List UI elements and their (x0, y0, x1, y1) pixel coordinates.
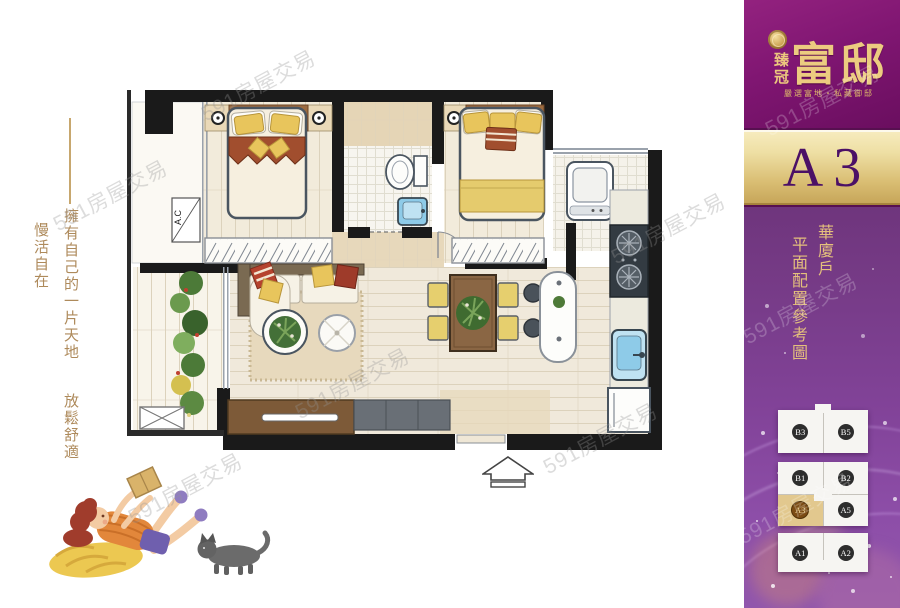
floor-plan: A.C (123, 85, 668, 465)
stack-cell-b3[interactable]: B3 (778, 410, 823, 453)
plan-title-part-2: 平面配置參考圖 (784, 236, 810, 362)
page: 擁有自己的一片天地 放鬆舒適 慢活自在 (0, 0, 900, 608)
ac-label: A.C (173, 209, 183, 225)
stack-block-top: B3 B5 (778, 410, 868, 453)
brand-logo-block: 臻冠 富邸 嚴選富地・私藏御邸 (744, 0, 900, 128)
unit-code-band: A3 (744, 128, 900, 207)
quote-part-1: 擁有自己的一片天地 (55, 208, 85, 361)
bedroom2-furniture (444, 105, 544, 263)
sidebar: 臻冠 富邸 嚴選富地・私藏御邸 A3 華廈戶 平面配置參考圖 B3 B5 B1 … (744, 0, 900, 608)
left-quote: 擁有自己的一片天地 放鬆舒適 慢活自在 (55, 208, 85, 488)
ac-ledge: A.C (172, 198, 200, 242)
brand-emblem-icon (768, 30, 787, 49)
brand-tagline: 嚴選富地・私藏御邸 (784, 88, 894, 99)
entrance-arrow (482, 456, 534, 490)
quote-divider-line (69, 118, 71, 204)
plan-title-part-1: 華廈戶 (815, 224, 832, 278)
stack-notch (814, 488, 832, 501)
quote-part-3: 慢活自在 (25, 222, 55, 290)
unit-stack-diagram: B3 B5 B1 B2 A3 A5 A1 A2 (778, 404, 868, 574)
unit-code: A3 (773, 140, 871, 196)
stack-cell-b5[interactable]: B5 (823, 410, 869, 453)
stack-notch (815, 404, 831, 413)
quote-part-2: 放鬆舒適 (55, 393, 85, 461)
stack-notch (815, 560, 831, 572)
cat-illustration (192, 526, 272, 578)
plan-title: 華廈戶 平面配置參考圖 (810, 224, 836, 434)
brand-name: 富邸 (791, 28, 897, 93)
